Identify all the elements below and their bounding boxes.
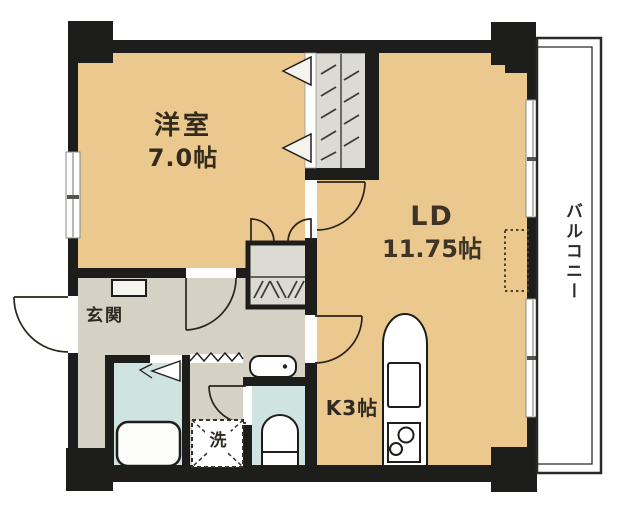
window-left	[66, 152, 80, 238]
doorway-toilet	[243, 386, 252, 425]
wall-bathroom-top	[105, 355, 150, 363]
wall-center-mid	[305, 238, 317, 315]
wall-top	[110, 40, 495, 53]
wall-bottom	[110, 465, 493, 482]
kitchen-sink	[388, 363, 420, 407]
bathtub	[117, 422, 180, 466]
wash-basin	[250, 356, 296, 377]
room-western-floor	[78, 53, 305, 268]
washroom-accordion-door	[190, 353, 243, 363]
wall-closet-bottom	[305, 168, 379, 180]
washing-machine-space	[192, 420, 243, 467]
wall-center-lower	[305, 362, 317, 465]
pillar-top-right	[491, 22, 536, 65]
floorplan-drawing	[0, 0, 640, 526]
stove-burner-large	[399, 428, 414, 443]
wall-western-hall-right	[236, 268, 250, 278]
floorplan: 洋室 7.0帖 LD 11.75帖 K3帖 玄関 洗 バルコニー	[0, 0, 640, 526]
balcony-outline	[537, 38, 601, 473]
toilet	[262, 415, 298, 466]
pillar-bottom-right	[491, 447, 537, 492]
wall-left-upper	[68, 53, 78, 153]
wall-toilet-left	[243, 425, 252, 468]
doorway-hall-kitchen	[305, 315, 317, 363]
wall-left-mid	[68, 238, 78, 298]
wall-bathroom-right	[182, 355, 190, 468]
doorway-hall-western	[186, 268, 236, 278]
wall-western-hall-left	[78, 268, 186, 278]
entrance-step	[112, 280, 146, 296]
stove-burner-small	[390, 443, 402, 455]
doorway-entrance	[68, 296, 78, 353]
door-entrance	[14, 297, 68, 352]
wall-closet-right	[365, 53, 379, 168]
wall-bathroom-left	[105, 355, 114, 468]
wall-toilet-top	[243, 377, 305, 386]
closet-lower	[248, 243, 312, 307]
wall-left-lower	[68, 353, 78, 450]
